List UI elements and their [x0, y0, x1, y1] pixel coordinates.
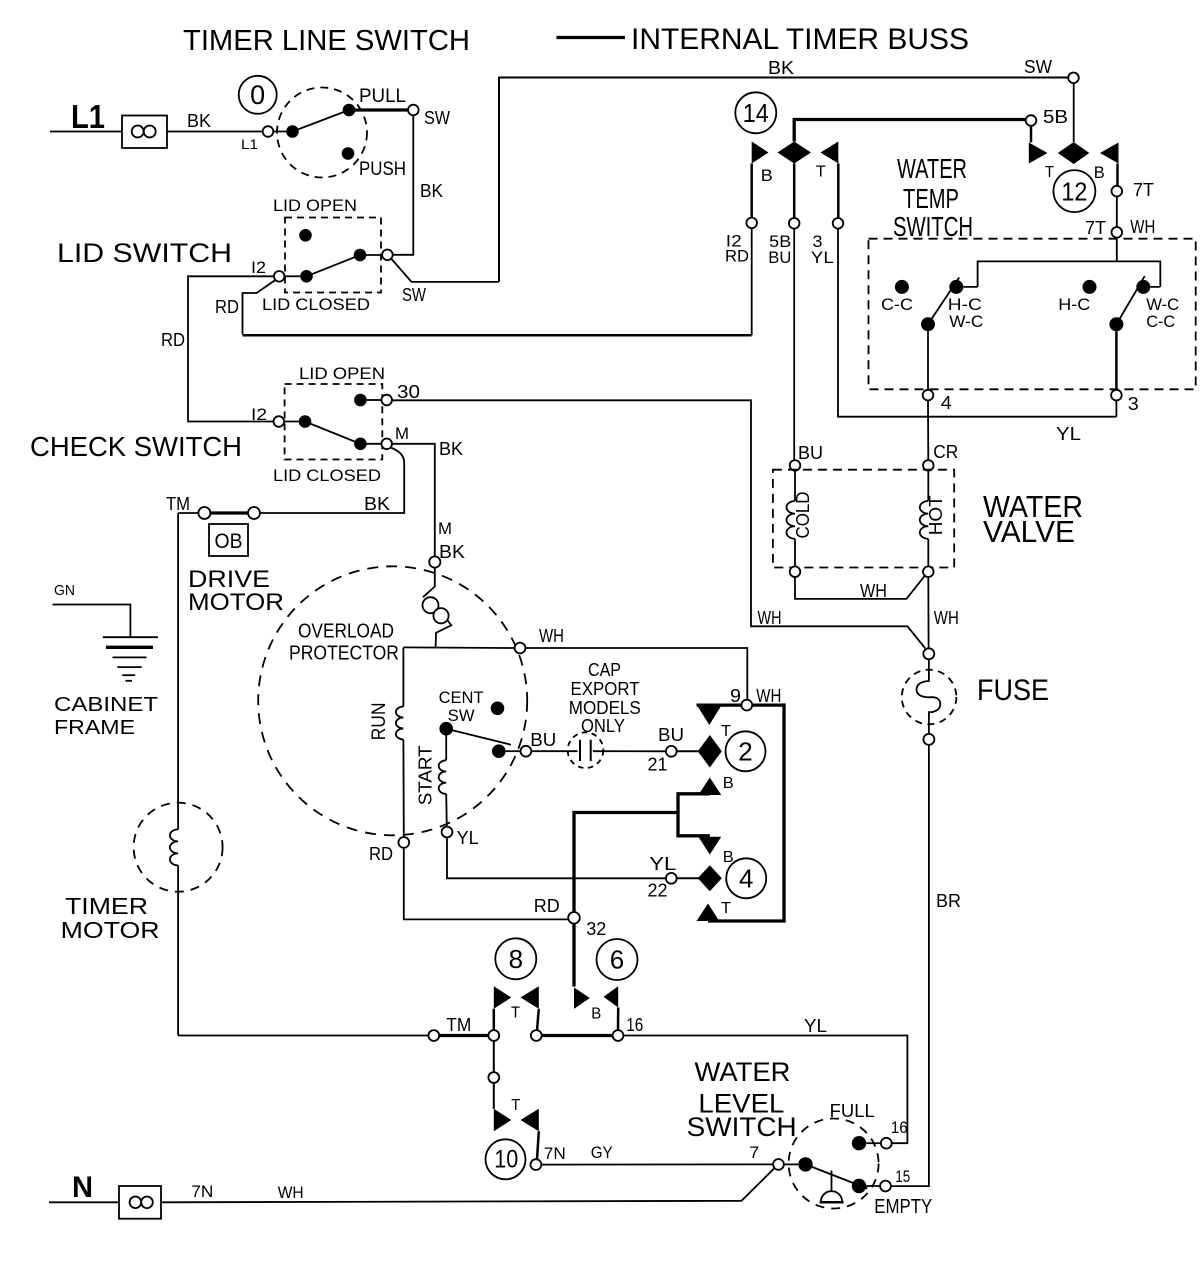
svg-text:I2: I2 — [251, 258, 266, 277]
svg-text:LID OPEN: LID OPEN — [299, 364, 385, 383]
svg-text:BU: BU — [658, 725, 684, 745]
svg-text:TIMER LINE SWITCH: TIMER LINE SWITCH — [183, 25, 470, 57]
svg-text:L1: L1 — [241, 136, 258, 152]
svg-text:12: 12 — [1061, 177, 1087, 207]
svg-text:CR: CR — [933, 442, 958, 462]
svg-text:SW: SW — [424, 108, 450, 128]
svg-text:YL: YL — [804, 1016, 827, 1036]
svg-text:21: 21 — [648, 755, 668, 775]
svg-text:C-C: C-C — [1146, 312, 1175, 331]
svg-text:LID OPEN: LID OPEN — [273, 196, 357, 215]
svg-text:WH: WH — [860, 581, 887, 601]
svg-text:9: 9 — [730, 686, 741, 706]
svg-text:START: START — [415, 745, 435, 805]
svg-text:L1: L1 — [71, 98, 105, 135]
svg-text:4: 4 — [941, 393, 952, 413]
svg-text:W-C: W-C — [949, 312, 983, 331]
svg-text:SW: SW — [448, 706, 475, 725]
svg-text:T: T — [816, 164, 826, 181]
svg-text:WH: WH — [539, 626, 564, 646]
svg-text:FUSE: FUSE — [977, 674, 1049, 707]
svg-text:OVERLOAD: OVERLOAD — [298, 621, 394, 643]
svg-text:PROTECTOR: PROTECTOR — [289, 643, 399, 665]
svg-text:WH: WH — [278, 1183, 304, 1202]
svg-text:B: B — [591, 1006, 601, 1023]
svg-text:RD: RD — [161, 330, 185, 350]
svg-text:H-C: H-C — [1058, 295, 1090, 314]
svg-text:HOT: HOT — [926, 495, 946, 535]
svg-text:MOTOR: MOTOR — [188, 589, 284, 616]
svg-text:TIMER: TIMER — [65, 893, 148, 919]
svg-text:7T: 7T — [1085, 218, 1106, 238]
svg-text:WH: WH — [1130, 217, 1155, 237]
svg-text:TM: TM — [446, 1015, 471, 1035]
svg-text:WH: WH — [756, 686, 781, 706]
svg-text:BK: BK — [439, 439, 463, 459]
svg-text:14: 14 — [743, 98, 769, 128]
svg-text:YL: YL — [457, 828, 479, 848]
svg-text:RD: RD — [369, 844, 393, 864]
svg-text:VALVE: VALVE — [983, 514, 1075, 549]
svg-text:7T: 7T — [1133, 180, 1154, 200]
svg-text:10: 10 — [494, 1146, 518, 1174]
svg-text:LID CLOSED: LID CLOSED — [273, 466, 381, 485]
svg-text:SW: SW — [402, 285, 426, 305]
svg-text:FRAME: FRAME — [54, 717, 135, 739]
svg-text:WATER: WATER — [897, 153, 967, 184]
svg-text:BR: BR — [936, 891, 961, 911]
svg-text:PUSH: PUSH — [359, 159, 406, 180]
svg-text:RD: RD — [215, 297, 239, 317]
svg-text:PULL: PULL — [359, 86, 406, 107]
svg-text:BK: BK — [768, 58, 794, 78]
svg-text:LID CLOSED: LID CLOSED — [262, 295, 370, 314]
svg-text:I2: I2 — [251, 405, 267, 424]
svg-text:INTERNAL TIMER BUSS: INTERNAL TIMER BUSS — [631, 23, 969, 56]
svg-text:BU: BU — [768, 248, 791, 267]
svg-text:T: T — [721, 900, 731, 917]
svg-text:3: 3 — [1128, 394, 1139, 414]
svg-text:YL: YL — [649, 854, 676, 874]
svg-text:LID SWITCH: LID SWITCH — [57, 238, 232, 268]
svg-text:5B: 5B — [1043, 107, 1068, 127]
svg-text:0: 0 — [250, 80, 265, 110]
svg-text:WH: WH — [758, 608, 782, 628]
svg-text:YL: YL — [811, 248, 834, 267]
svg-text:EMPTY: EMPTY — [874, 1196, 932, 1218]
svg-text:M: M — [438, 519, 452, 538]
svg-text:N: N — [72, 1171, 93, 1204]
svg-text:BK: BK — [187, 111, 211, 131]
svg-text:CHECK SWITCH: CHECK SWITCH — [30, 431, 242, 462]
svg-text:BK: BK — [364, 494, 390, 514]
svg-text:YL: YL — [1056, 424, 1081, 444]
svg-text:BU: BU — [798, 443, 823, 463]
svg-text:15: 15 — [895, 1167, 910, 1186]
svg-text:BK: BK — [439, 542, 465, 562]
svg-text:SWITCH: SWITCH — [687, 1112, 797, 1142]
svg-text:16: 16 — [626, 1015, 643, 1035]
svg-text:TEMP: TEMP — [903, 183, 959, 214]
svg-text:16: 16 — [891, 1118, 908, 1137]
svg-text:M: M — [395, 424, 409, 443]
svg-text:32: 32 — [586, 919, 606, 939]
svg-text:WATER: WATER — [695, 1057, 791, 1087]
svg-text:OB: OB — [215, 530, 243, 553]
svg-text:2: 2 — [738, 737, 752, 767]
svg-text:MOTOR: MOTOR — [61, 917, 160, 943]
svg-text:22: 22 — [648, 881, 668, 901]
svg-text:RUN: RUN — [369, 702, 390, 740]
svg-text:TM: TM — [166, 494, 190, 514]
svg-text:T: T — [511, 1005, 520, 1022]
svg-text:B: B — [1094, 163, 1105, 182]
svg-text:COLD: COLD — [793, 492, 813, 539]
svg-text:7: 7 — [749, 1143, 759, 1162]
svg-text:C-C: C-C — [881, 295, 913, 314]
svg-text:7N: 7N — [544, 1144, 566, 1163]
svg-text:GY: GY — [591, 1143, 613, 1162]
svg-text:CAP: CAP — [588, 660, 621, 680]
svg-text:RD: RD — [534, 896, 560, 916]
svg-text:CENT: CENT — [439, 688, 484, 707]
svg-text:BU: BU — [530, 730, 556, 750]
svg-text:B: B — [761, 166, 773, 185]
svg-text:B: B — [723, 775, 734, 792]
svg-text:EXPORT: EXPORT — [571, 679, 640, 699]
svg-text:SW: SW — [1024, 57, 1052, 77]
svg-text:6: 6 — [610, 945, 624, 975]
svg-text:CABINET: CABINET — [54, 694, 158, 716]
svg-text:BK: BK — [420, 181, 443, 201]
svg-text:T: T — [511, 1097, 520, 1114]
svg-text:30: 30 — [397, 382, 420, 402]
svg-text:ONLY: ONLY — [581, 716, 625, 736]
svg-text:SWITCH: SWITCH — [893, 211, 973, 242]
svg-text:8: 8 — [509, 944, 523, 974]
svg-text:RD: RD — [725, 247, 749, 266]
svg-text:FULL: FULL — [830, 1101, 875, 1121]
svg-text:4: 4 — [739, 864, 753, 894]
svg-text:GN: GN — [54, 582, 75, 599]
svg-text:7N: 7N — [191, 1182, 213, 1201]
svg-text:MODELS: MODELS — [569, 698, 641, 718]
svg-text:T: T — [1045, 164, 1054, 181]
svg-text:T: T — [721, 723, 731, 740]
svg-text:WH: WH — [934, 608, 959, 628]
